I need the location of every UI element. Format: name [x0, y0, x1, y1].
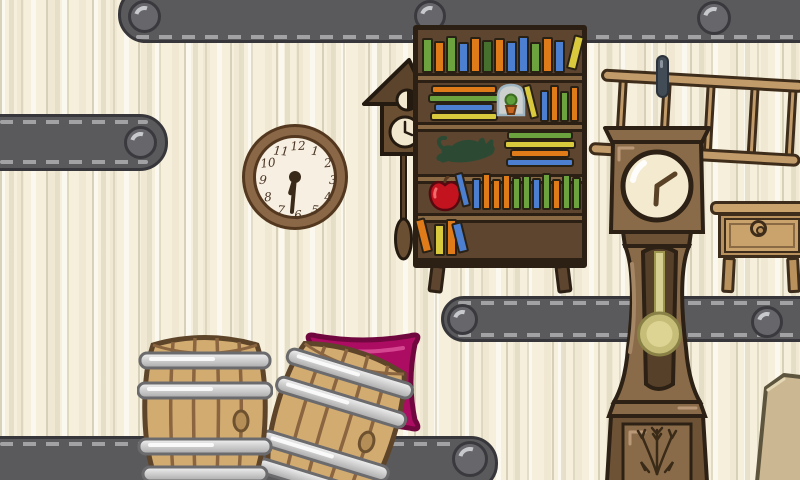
book[interactable]	[562, 174, 571, 210]
pulley-wheel	[128, 0, 161, 33]
book[interactable]	[422, 38, 433, 73]
shelf-books-row[interactable]	[422, 221, 469, 256]
shelf-books-row[interactable]	[530, 87, 579, 122]
wall-peg	[656, 55, 669, 98]
book[interactable]	[522, 175, 531, 210]
clock-numeral: 5	[311, 203, 320, 218]
book[interactable]	[430, 112, 498, 121]
book[interactable]	[507, 131, 573, 140]
book[interactable]	[434, 41, 445, 73]
book[interactable]	[566, 34, 585, 71]
book[interactable]	[458, 42, 469, 73]
book[interactable]	[512, 177, 521, 210]
book[interactable]	[414, 217, 433, 254]
book[interactable]	[542, 37, 553, 73]
pulley-wheel	[124, 126, 157, 159]
plant-pot	[506, 106, 516, 114]
plant	[506, 95, 517, 106]
clock-center-pin	[289, 171, 301, 183]
book[interactable]	[504, 140, 576, 149]
hour-hand	[656, 186, 657, 204]
book[interactable]	[560, 91, 569, 122]
book-stack[interactable]	[428, 85, 500, 121]
pulley-wheel	[452, 441, 488, 477]
grandfather-clock[interactable]	[599, 122, 715, 480]
table-top	[710, 201, 800, 215]
table-leg	[721, 257, 736, 294]
game-room-scene: 12 1 2 3 4 5 6 7 8 9 10 11	[0, 0, 800, 480]
book[interactable]	[532, 178, 541, 210]
book[interactable]	[482, 173, 491, 210]
book[interactable]	[482, 40, 493, 73]
book[interactable]	[570, 86, 579, 122]
book[interactable]	[552, 179, 561, 210]
barrel-upright[interactable]	[137, 333, 273, 480]
cuckoo-pendulum-bob	[396, 219, 412, 259]
clock-numeral: 4	[323, 190, 332, 205]
book[interactable]	[510, 149, 570, 158]
clock-numeral: 3	[329, 173, 338, 187]
book[interactable]	[550, 85, 559, 122]
cat-body	[436, 138, 494, 163]
pendulum-bob-center	[647, 321, 673, 347]
drawer-knob[interactable]	[750, 220, 767, 237]
book[interactable]	[434, 224, 445, 256]
book[interactable]	[554, 40, 565, 73]
clock-numeral: 10	[260, 155, 277, 171]
book[interactable]	[428, 94, 500, 103]
book[interactable]	[470, 37, 481, 73]
paper-sack[interactable]	[754, 370, 800, 480]
table-leg	[786, 257, 800, 294]
pulley-wheel	[751, 306, 783, 338]
book[interactable]	[434, 103, 494, 112]
book[interactable]	[506, 158, 574, 167]
pulley-wheel	[447, 304, 478, 335]
book[interactable]	[492, 179, 501, 210]
bookshelf[interactable]	[413, 25, 587, 268]
clock-numeral: 11	[273, 143, 289, 158]
book[interactable]	[540, 90, 549, 122]
clock-numeral: 1	[310, 144, 319, 159]
clock-numeral: 2	[324, 156, 333, 171]
book[interactable]	[446, 36, 457, 73]
book[interactable]	[542, 173, 551, 210]
clock-numeral: 9	[259, 173, 268, 187]
clock-numeral: 7	[276, 203, 285, 218]
pulley-wheel	[697, 1, 731, 35]
book[interactable]	[472, 178, 481, 210]
wall-clock[interactable]: 12 1 2 3 4 5 6 7 8 9 10 11	[242, 124, 348, 230]
book[interactable]	[431, 85, 497, 94]
book[interactable]	[530, 42, 541, 73]
book[interactable]	[572, 177, 581, 210]
book[interactable]	[494, 38, 505, 73]
bookshelf-leg	[427, 264, 445, 294]
sack-body	[757, 375, 800, 480]
book[interactable]	[518, 36, 529, 73]
shelf-books-row[interactable]	[422, 38, 577, 73]
apple-highlight	[435, 189, 436, 197]
book[interactable]	[502, 174, 511, 210]
clock-neck	[623, 232, 691, 246]
belt-stitching	[0, 120, 148, 124]
book[interactable]	[506, 41, 517, 73]
belt-stitching	[0, 160, 148, 164]
bookshelf-leg	[554, 264, 572, 294]
ladder-top-rail	[601, 68, 800, 93]
clock-crown	[605, 128, 709, 142]
book-stack[interactable]	[504, 131, 576, 167]
clock-numeral: 12	[290, 139, 306, 154]
cat-figurine[interactable]	[428, 132, 500, 166]
clock-numeral: 6	[294, 208, 303, 222]
shelf-books-row[interactable]	[462, 175, 581, 210]
clock-numeral: 8	[264, 190, 273, 205]
